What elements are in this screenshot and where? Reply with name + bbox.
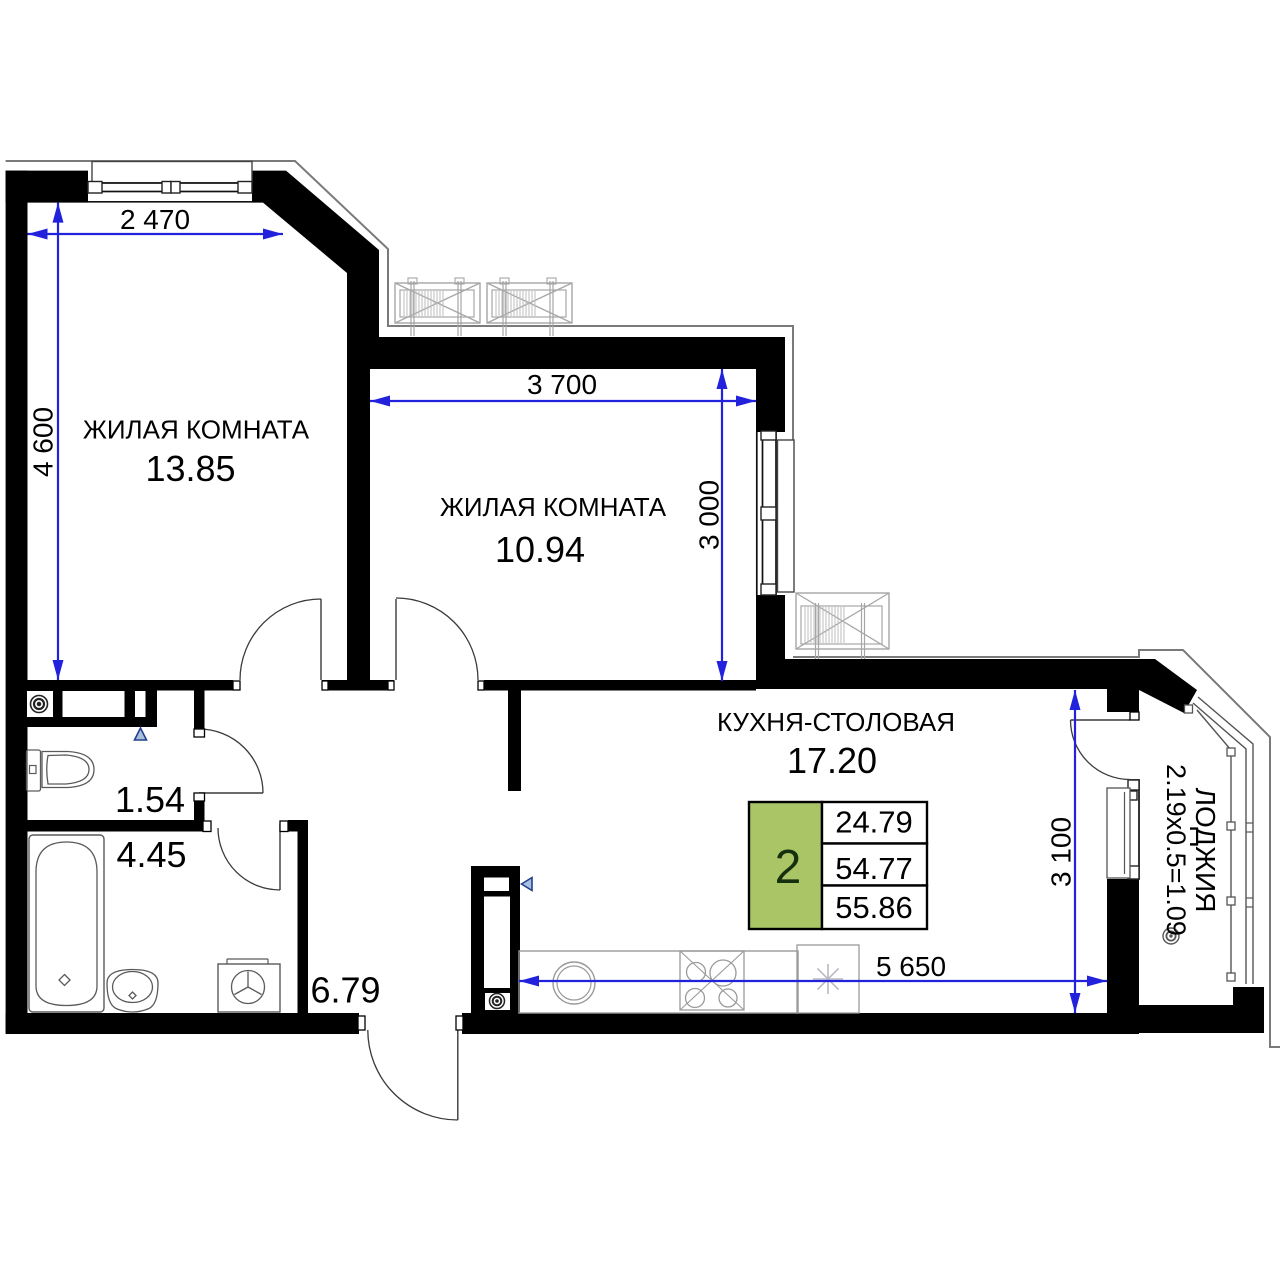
svg-text:13.85: 13.85 [145,448,235,489]
svg-text:6.79: 6.79 [310,970,380,1011]
svg-text:3 000: 3 000 [694,480,725,550]
svg-text:55.86: 55.86 [835,890,913,925]
svg-text:5 650: 5 650 [876,951,946,982]
svg-text:ЖИЛАЯ КОМНАТА: ЖИЛАЯ КОМНАТА [440,492,667,522]
svg-text:1.54: 1.54 [115,779,185,820]
svg-text:3 700: 3 700 [527,369,597,400]
svg-text:24.79: 24.79 [835,805,913,840]
svg-text:3 100: 3 100 [1046,817,1077,887]
svg-text:2 470: 2 470 [120,204,190,235]
svg-text:ЖИЛАЯ КОМНАТА: ЖИЛАЯ КОМНАТА [83,415,310,445]
svg-text:54.77: 54.77 [835,851,913,886]
svg-text:КУХНЯ-СТОЛОВАЯ: КУХНЯ-СТОЛОВАЯ [717,707,955,737]
svg-text:4 600: 4 600 [28,407,59,477]
svg-text:2.19х0.5=1.09: 2.19х0.5=1.09 [1161,764,1191,936]
svg-text:2: 2 [775,841,802,894]
svg-text:10.94: 10.94 [495,529,585,570]
svg-text:ЛОДЖИЯ: ЛОДЖИЯ [1190,788,1221,913]
svg-text:4.45: 4.45 [116,834,186,875]
svg-text:17.20: 17.20 [787,740,877,781]
